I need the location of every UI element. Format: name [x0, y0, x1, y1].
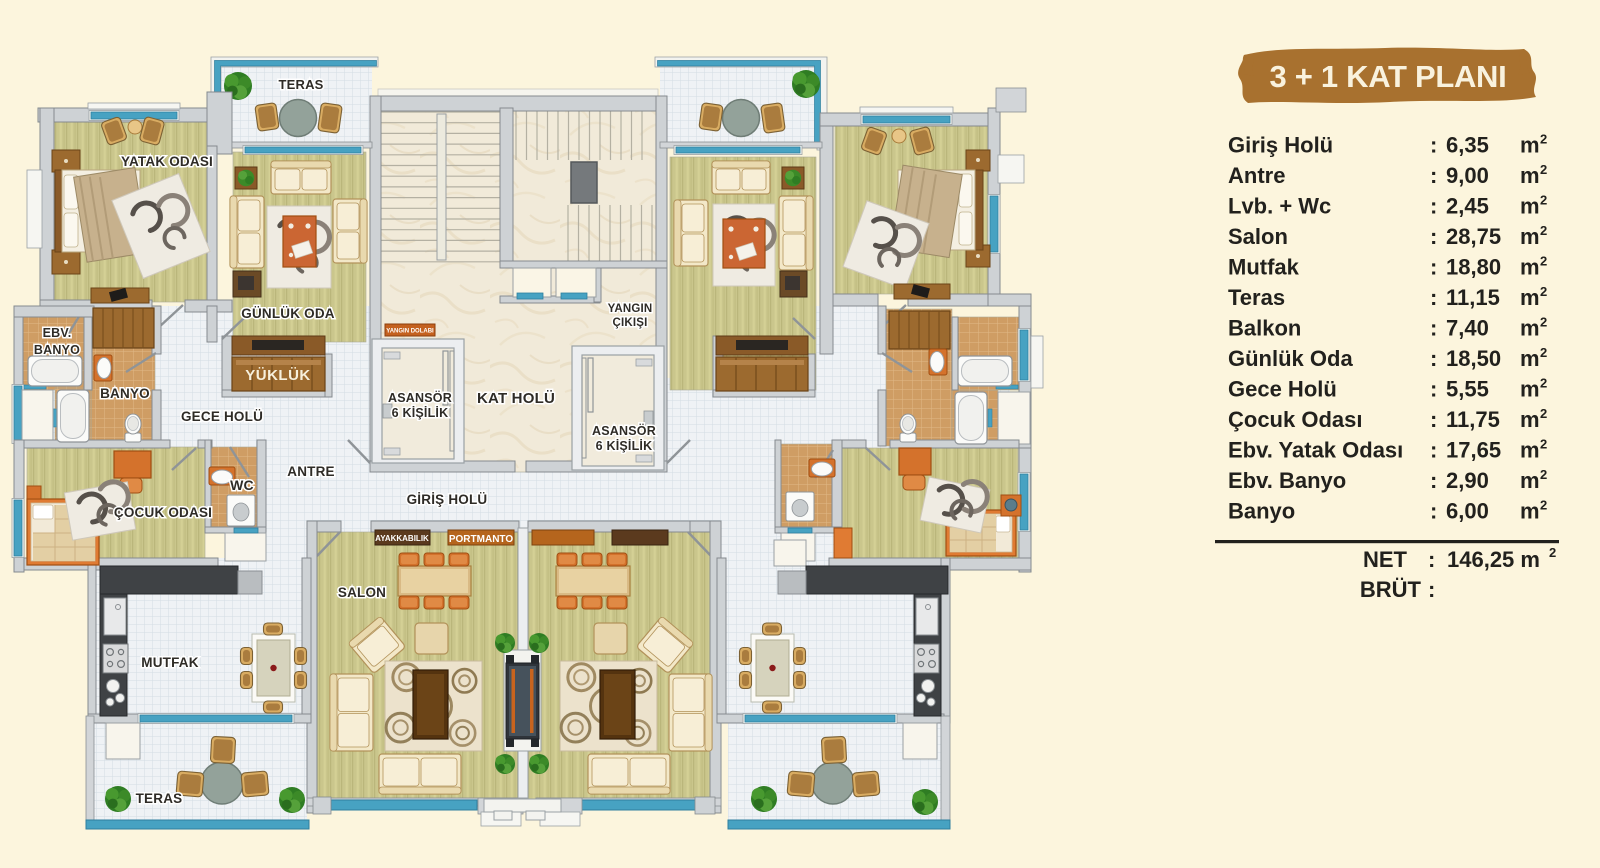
svg-text:3 + 1 KAT PLANI: 3 + 1 KAT PLANI [1270, 59, 1507, 94]
svg-text::: : [1430, 499, 1437, 524]
svg-text:m: m [1520, 316, 1540, 341]
svg-text::: : [1430, 468, 1437, 493]
svg-text:28,75: 28,75 [1446, 224, 1501, 249]
svg-text:Antre: Antre [1228, 163, 1285, 188]
svg-text:11,75: 11,75 [1446, 407, 1500, 432]
svg-text::: : [1430, 133, 1437, 158]
svg-text:2: 2 [1540, 467, 1547, 482]
svg-text:KAT HOLÜ: KAT HOLÜ [477, 390, 555, 407]
svg-text:2: 2 [1540, 406, 1547, 421]
svg-text:18,80: 18,80 [1446, 255, 1501, 280]
svg-text:m: m [1520, 224, 1540, 249]
svg-text:m: m [1520, 194, 1540, 219]
svg-text:2: 2 [1540, 254, 1547, 269]
svg-text:GECE HOLÜ: GECE HOLÜ [181, 409, 263, 424]
svg-text:EBV.: EBV. [43, 326, 72, 340]
svg-text::: : [1430, 438, 1437, 463]
svg-text::: : [1430, 194, 1437, 219]
svg-text:TERAS: TERAS [136, 791, 183, 806]
svg-text:ASANSÖR: ASANSÖR [592, 423, 656, 438]
svg-text:GİRİŞ HOLÜ: GİRİŞ HOLÜ [407, 492, 488, 507]
svg-text:ASANSÖR: ASANSÖR [388, 390, 452, 405]
svg-text::: : [1430, 316, 1437, 341]
svg-text:m: m [1520, 285, 1540, 310]
svg-text:Mutfak: Mutfak [1228, 255, 1300, 280]
svg-text:2: 2 [1540, 376, 1547, 391]
svg-text:YATAK ODASI: YATAK ODASI [121, 154, 213, 169]
svg-text::: : [1430, 346, 1437, 371]
svg-text:AYAKKABILIK: AYAKKABILIK [375, 534, 429, 543]
svg-text:2: 2 [1540, 437, 1547, 452]
svg-text::: : [1430, 255, 1437, 280]
svg-text:ANTRE: ANTRE [287, 464, 335, 479]
svg-text:Ebv. Yatak Odası: Ebv. Yatak Odası [1228, 438, 1403, 463]
svg-text:2: 2 [1540, 315, 1547, 330]
svg-text:MUTFAK: MUTFAK [141, 655, 198, 670]
svg-text:TERAS: TERAS [278, 77, 323, 92]
svg-text:GÜNLÜK ODA: GÜNLÜK ODA [241, 306, 335, 321]
svg-text:5,55: 5,55 [1446, 377, 1489, 402]
svg-text:SALON: SALON [338, 585, 386, 600]
svg-text::: : [1430, 377, 1437, 402]
svg-text:BANYO: BANYO [34, 343, 80, 357]
svg-text:m: m [1520, 133, 1540, 158]
svg-text:Gece Holü: Gece Holü [1228, 377, 1337, 402]
svg-text:2,90: 2,90 [1446, 468, 1489, 493]
svg-text:6,35: 6,35 [1446, 133, 1489, 158]
svg-text::: : [1428, 547, 1435, 572]
svg-text:6 KİŞİLİK: 6 KİŞİLİK [392, 405, 449, 420]
svg-text:6,00: 6,00 [1446, 499, 1489, 524]
svg-text::: : [1430, 285, 1437, 310]
svg-text::: : [1430, 224, 1437, 249]
svg-text:m: m [1520, 438, 1540, 463]
svg-text:PORTMANTO: PORTMANTO [449, 534, 513, 545]
svg-text:2,45: 2,45 [1446, 194, 1489, 219]
svg-text:YANGIN DOLABI: YANGIN DOLABI [386, 329, 434, 335]
svg-text:ÇIKIŞI: ÇIKIŞI [612, 317, 647, 329]
svg-text:2: 2 [1540, 223, 1547, 238]
svg-text:YÜKLÜK: YÜKLÜK [245, 367, 311, 384]
svg-text:7,40: 7,40 [1446, 316, 1489, 341]
svg-text:17,65: 17,65 [1446, 438, 1501, 463]
svg-text:BANYO: BANYO [100, 386, 150, 401]
svg-text::: : [1428, 577, 1435, 602]
svg-text:m: m [1520, 255, 1540, 280]
svg-text:11,15: 11,15 [1446, 285, 1500, 310]
svg-text:WC: WC [230, 477, 254, 493]
svg-text:2: 2 [1540, 284, 1547, 299]
svg-text:2: 2 [1549, 545, 1556, 560]
svg-text:146,25 m: 146,25 m [1447, 547, 1540, 572]
svg-text:m: m [1520, 407, 1540, 432]
svg-text::: : [1430, 163, 1437, 188]
svg-text::: : [1430, 407, 1437, 432]
svg-text:m: m [1520, 377, 1540, 402]
svg-text:ÇOCUK ODASI: ÇOCUK ODASI [114, 505, 212, 520]
svg-text:m: m [1520, 346, 1540, 371]
svg-text:YANGIN: YANGIN [608, 303, 653, 315]
svg-text:m: m [1520, 468, 1540, 493]
svg-text:Giriş Holü: Giriş Holü [1228, 133, 1333, 158]
svg-text:m: m [1520, 163, 1540, 188]
svg-text:m: m [1520, 499, 1540, 524]
svg-text:Lvb. + Wc: Lvb. + Wc [1228, 194, 1331, 219]
svg-text:2: 2 [1540, 345, 1547, 360]
svg-text:Balkon: Balkon [1228, 316, 1301, 341]
svg-text:BRÜT: BRÜT [1360, 577, 1422, 602]
svg-text:Banyo: Banyo [1228, 499, 1295, 524]
svg-text:Ebv. Banyo: Ebv. Banyo [1228, 468, 1346, 493]
svg-text:6 KİŞİLİK: 6 KİŞİLİK [596, 438, 653, 453]
svg-text:9,00: 9,00 [1446, 163, 1489, 188]
svg-text:Çocuk Odası: Çocuk Odası [1228, 407, 1362, 432]
svg-text:2: 2 [1540, 193, 1547, 208]
svg-text:Teras: Teras [1228, 285, 1285, 310]
svg-text:2: 2 [1540, 132, 1547, 147]
svg-text:Salon: Salon [1228, 224, 1288, 249]
svg-text:2: 2 [1540, 498, 1547, 513]
svg-text:Günlük Oda: Günlük Oda [1228, 346, 1353, 371]
svg-text:NET: NET [1363, 547, 1408, 572]
svg-text:2: 2 [1540, 162, 1547, 177]
svg-text:18,50: 18,50 [1446, 346, 1501, 371]
